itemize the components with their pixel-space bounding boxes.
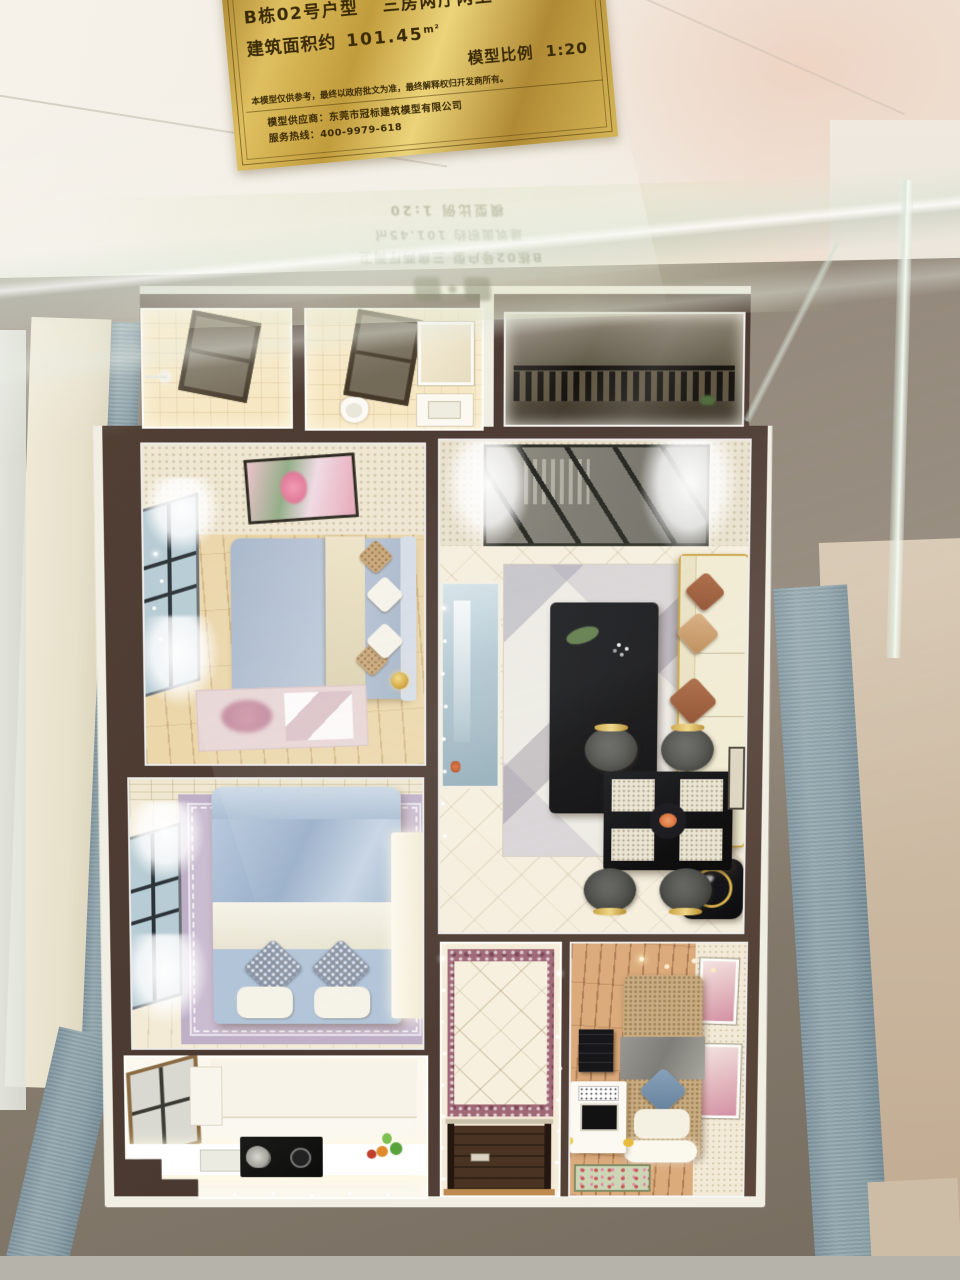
scale-value: 1:20 [545,39,589,61]
kitchen-tall-cabinet [189,1067,222,1126]
kitchen-sink [200,1150,242,1172]
tomato [367,1150,377,1159]
bedroom-3-white-pillow [634,1109,690,1138]
scale-model-display-photo: B栋02号户型 三房两厅两卫 建筑面积约 101.45㎡ 模型比例 1:20 B… [0,0,960,1280]
vegetable-basket [363,1139,413,1167]
door-rail-right [544,1124,551,1192]
bedroom-3-desk [570,1081,626,1153]
unit-name: B栋02号户型 [243,0,359,29]
kitchen [124,1055,429,1199]
entry-door [449,1126,549,1190]
pumpkin [376,1146,388,1157]
desk-calendar [578,1086,619,1101]
door-sill [444,1189,555,1195]
desk-yellow-toy [568,1137,573,1145]
area-value: 101.45 [345,25,424,52]
greens-2 [382,1133,392,1144]
greens [390,1142,403,1155]
bedroom-3-foot-cushion [624,1140,697,1162]
master-curtain-bottom [127,934,208,1024]
cooktop [240,1137,323,1177]
door-threshold [446,1119,554,1124]
master-curtain-top [127,802,204,880]
door-handle [470,1153,489,1161]
bedroom-3-nightstand [579,1029,614,1072]
toilet [340,397,368,423]
scale-label: 模型比例 [467,44,534,68]
bedroom-3-bed [622,975,703,1158]
image-bottom-ledge [0,1256,960,1280]
burner-2 [290,1148,311,1168]
door-rail-left [447,1124,454,1192]
desk-screen [580,1104,619,1132]
frying-pan [246,1146,269,1168]
area-label: 建筑面积约 [246,32,337,60]
bedroom-3-art-frame-1 [697,958,739,1025]
kitchen-led-glow [156,1190,160,1194]
bedroom-3-floral-rug [574,1164,651,1191]
desk-orange-item [623,1139,634,1147]
area-unit: m² [423,23,441,35]
